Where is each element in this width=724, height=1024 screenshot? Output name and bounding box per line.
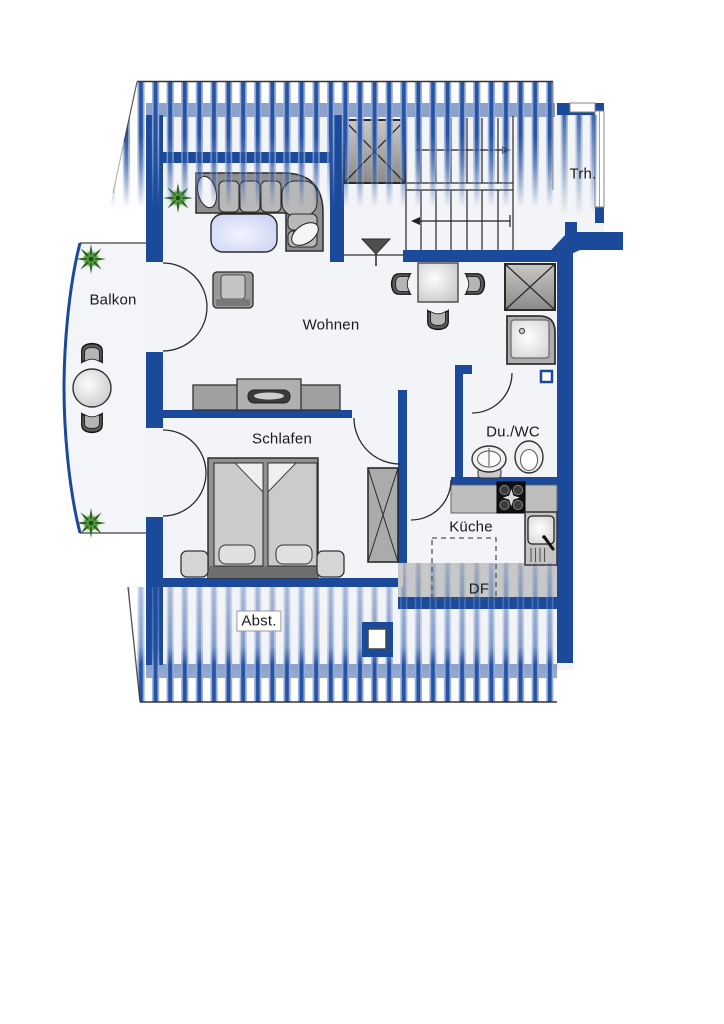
label-shower-wc: Du./WC [486,424,540,441]
vent-shaft [541,371,552,382]
label-stairwell: Trh. [570,166,597,183]
label-living: Wohnen [303,317,360,334]
nightstand-left [181,551,208,577]
shower-tray [507,316,555,364]
label-roof-window: DF [469,581,489,598]
label-balcony: Balkon [89,292,136,309]
balcony-table [73,369,111,407]
double-bed [208,458,318,578]
dining-chair-right [466,274,486,295]
label-sleeping: Schlafen [252,431,312,448]
dining-chair-bottom [428,311,449,331]
floor-plan-page: Balkon Wohnen Schlafen Du./WC Küche DF T… [0,0,724,1024]
armchair [213,272,253,308]
stove [497,482,525,513]
toilet [515,441,543,473]
dining-table [418,263,458,302]
plant-icon [76,244,106,274]
chimney [362,622,393,657]
floor-plan-drawing [0,0,724,1024]
dining-chair-left [391,274,411,295]
plant-icon [76,508,106,538]
coffee-table [211,214,277,252]
kitchen-sink [525,512,557,565]
label-storage: Abst. [236,611,281,632]
nightstand-right [317,551,344,577]
balcony-chair-bottom [82,414,103,434]
balcony-chair-top [82,343,103,363]
shaft-box-lower [505,264,555,310]
wardrobe [368,468,398,562]
roof-hatch-top [110,82,553,207]
label-kitchen: Küche [449,519,493,536]
